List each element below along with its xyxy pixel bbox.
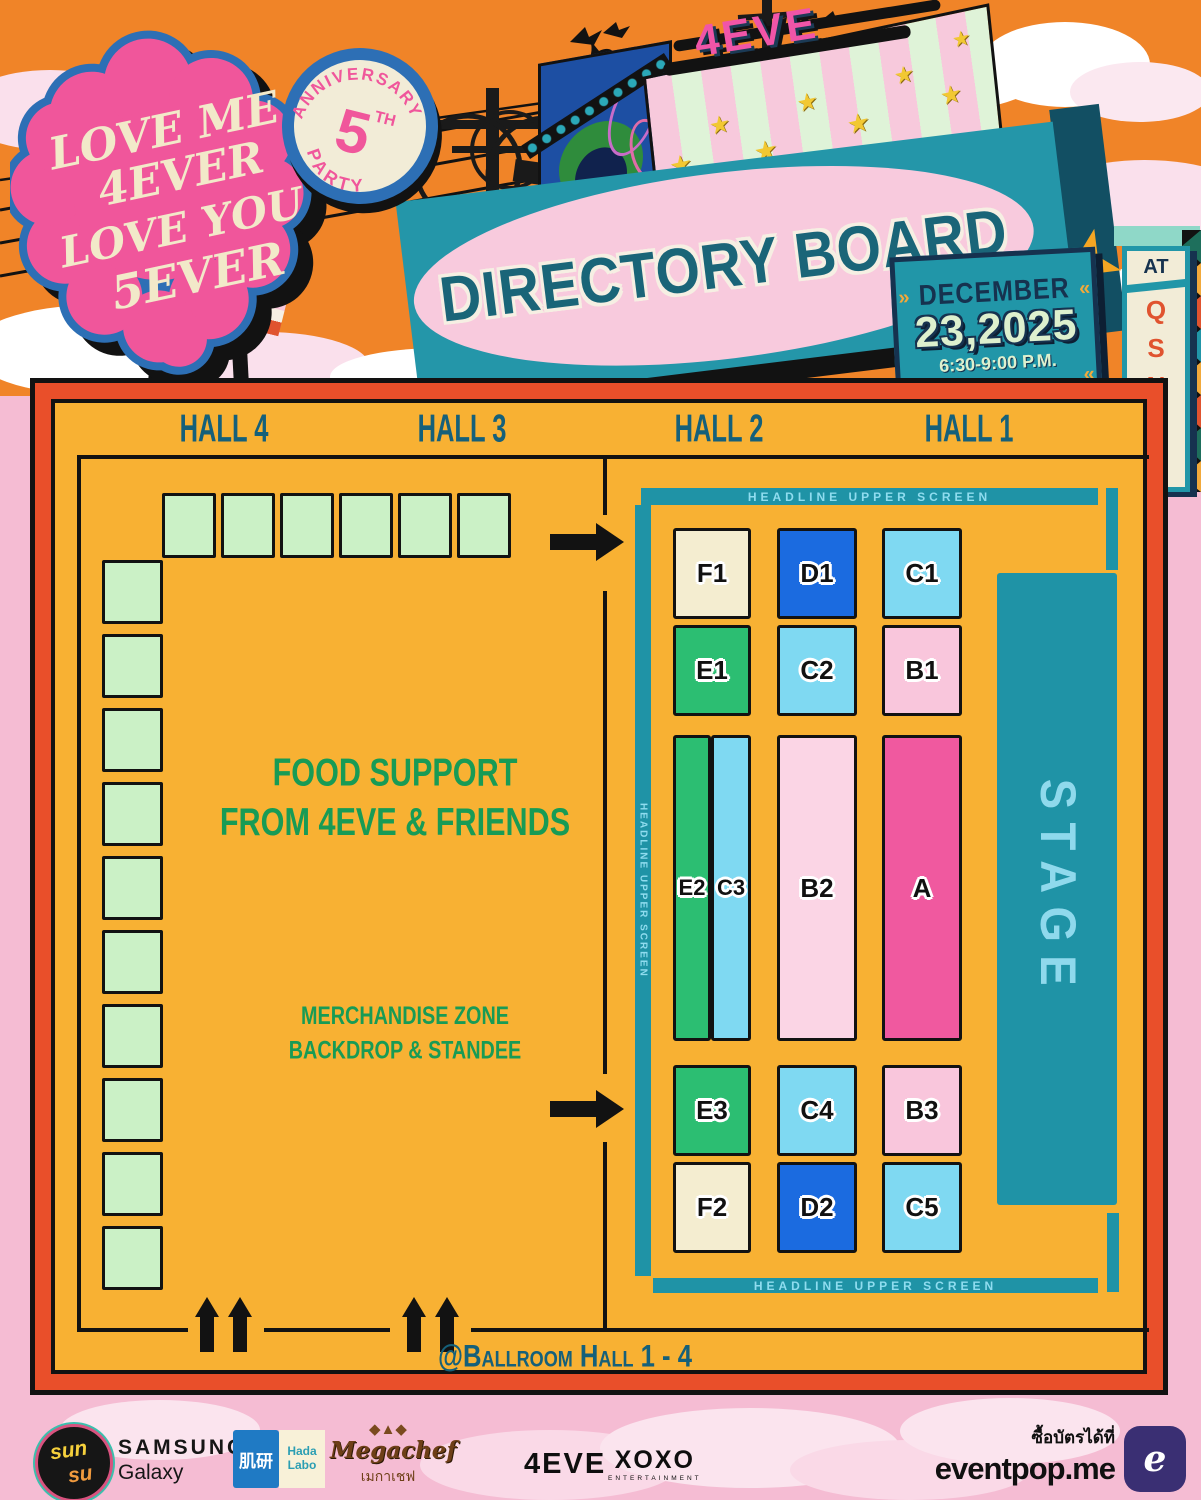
zone-C5: C5 bbox=[882, 1162, 962, 1253]
headline-screen-top: HEADLINE UPPER SCREEN bbox=[641, 488, 1098, 505]
booth-square bbox=[221, 493, 275, 558]
wall-top bbox=[77, 455, 1149, 459]
booth-square bbox=[102, 930, 163, 994]
directory-map-board: HALL 4 HALL 3 HALL 2 HALL 1 FOOD SUPP bbox=[30, 378, 1168, 1395]
sunsu-logo: sun su bbox=[35, 1424, 113, 1500]
tickets-info: ซื้อบัตรได้ที่ eventpop.me bbox=[930, 1424, 1115, 1487]
zone-F2: F2 bbox=[673, 1162, 751, 1253]
hall-3-label: HALL 3 bbox=[403, 408, 522, 452]
headline-screen-bottom: HEADLINE UPPER SCREEN bbox=[653, 1278, 1098, 1293]
anniversary-badge: ANNIVERSARY 5 TH PARTY bbox=[272, 38, 452, 218]
wall-bottom bbox=[471, 1328, 1149, 1332]
booth-square bbox=[102, 708, 163, 772]
hall-1-label: HALL 1 bbox=[910, 408, 1029, 452]
board-floorplan: HALL 4 HALL 3 HALL 2 HALL 1 FOOD SUPP bbox=[51, 399, 1147, 1374]
entrance-arrow-icon bbox=[550, 1090, 624, 1128]
zone-E2: E2 bbox=[673, 735, 711, 1041]
booth-square bbox=[457, 493, 511, 558]
zone-C2: C2 bbox=[777, 625, 857, 716]
side-screen-bar bbox=[1106, 488, 1118, 570]
tickets-site: eventpop.me bbox=[930, 1451, 1115, 1487]
side-screen-bar bbox=[1107, 1213, 1119, 1292]
entrance-arrow-icon bbox=[550, 523, 624, 561]
booth-square bbox=[102, 1152, 163, 1216]
zone-C3: C3 bbox=[711, 735, 751, 1041]
booth-square bbox=[102, 856, 163, 920]
booth-column-left bbox=[102, 560, 163, 1292]
zone-E3: E3 bbox=[673, 1065, 751, 1156]
booth-square bbox=[102, 634, 163, 698]
booth-square bbox=[162, 493, 216, 558]
booth-square bbox=[102, 782, 163, 846]
samsung-galaxy-logo: SAMSUNG Galaxy bbox=[118, 1436, 246, 1485]
entrance-up-arrows-icon bbox=[195, 1297, 253, 1353]
zone-D1: D1 bbox=[777, 528, 857, 619]
wall-bottom bbox=[264, 1328, 390, 1332]
zone-C4: C4 bbox=[777, 1065, 857, 1156]
star-icon: ★ bbox=[795, 86, 819, 119]
megachef-logo: ◆▲◆ Megachef เมกาเชฟ bbox=[330, 1422, 446, 1488]
hada-labo-logo: 肌研 Hada Labo bbox=[233, 1430, 325, 1488]
stage-area: STAGE bbox=[997, 573, 1117, 1205]
hall-2-label: HALL 2 bbox=[660, 408, 779, 452]
ballroom-label: @Ballroom Hall 1 - 4 bbox=[413, 1339, 717, 1375]
bird-icon bbox=[603, 22, 630, 38]
zone-F1: F1 bbox=[673, 528, 751, 619]
xoxo-logo: XOXO ENTERTAINMENT bbox=[608, 1446, 702, 1482]
star-icon: ★ bbox=[892, 59, 915, 90]
booth-square bbox=[339, 493, 393, 558]
zone-B2: B2 bbox=[777, 735, 857, 1041]
zone-B1: B1 bbox=[882, 625, 962, 716]
wall-divider bbox=[603, 455, 607, 515]
hall-4-label: HALL 4 bbox=[165, 408, 284, 452]
wall-divider bbox=[603, 1142, 607, 1328]
crown-icon: ◆▲◆ bbox=[330, 1422, 446, 1437]
stage-label: STAGE bbox=[1028, 779, 1086, 999]
wall-bottom bbox=[77, 1328, 188, 1332]
star-icon: ★ bbox=[951, 25, 972, 54]
zone-D2: D2 bbox=[777, 1162, 857, 1253]
wall-left bbox=[77, 455, 81, 1332]
board-red-frame: HALL 4 HALL 3 HALL 2 HALL 1 FOOD SUPP bbox=[35, 383, 1163, 1390]
tickets-label: ซื้อบัตรได้ที่ bbox=[930, 1424, 1115, 1451]
booth-row-top bbox=[162, 493, 514, 558]
booth-square bbox=[398, 493, 452, 558]
zone-E1: E1 bbox=[673, 625, 751, 716]
headline-screen-left: HEADLINE UPPER SCREEN bbox=[635, 505, 651, 1276]
chevron-icon: » bbox=[898, 288, 910, 309]
eventpop-logo: e bbox=[1124, 1426, 1186, 1492]
poster-canvas: ★ ★ ★ ★ ★ ★ ★ ★ 4EVE DIRECTORY BOARD » »… bbox=[0, 0, 1201, 1500]
star-icon: ★ bbox=[708, 109, 732, 142]
booth-square bbox=[280, 493, 334, 558]
booth-square bbox=[102, 1226, 163, 1290]
star-icon: ★ bbox=[938, 78, 963, 113]
booth-square bbox=[102, 560, 163, 624]
booth-square bbox=[102, 1004, 163, 1068]
booth-square bbox=[102, 1078, 163, 1142]
bird-icon bbox=[570, 27, 602, 45]
4eve-logo: 4EVE bbox=[524, 1448, 606, 1481]
merchandise-zone-label: MERCHANDISE ZONE BACKDROP & STANDEE bbox=[198, 999, 612, 1067]
chevron-icon: « bbox=[1079, 278, 1091, 299]
zone-A: A bbox=[882, 735, 962, 1041]
food-support-label: FOOD SUPPORT FROM 4EVE & FRIENDS bbox=[170, 749, 620, 847]
zone-B3: B3 bbox=[882, 1065, 962, 1156]
venue-at-label: AT bbox=[1143, 256, 1168, 279]
zone-C1: C1 bbox=[882, 528, 962, 619]
